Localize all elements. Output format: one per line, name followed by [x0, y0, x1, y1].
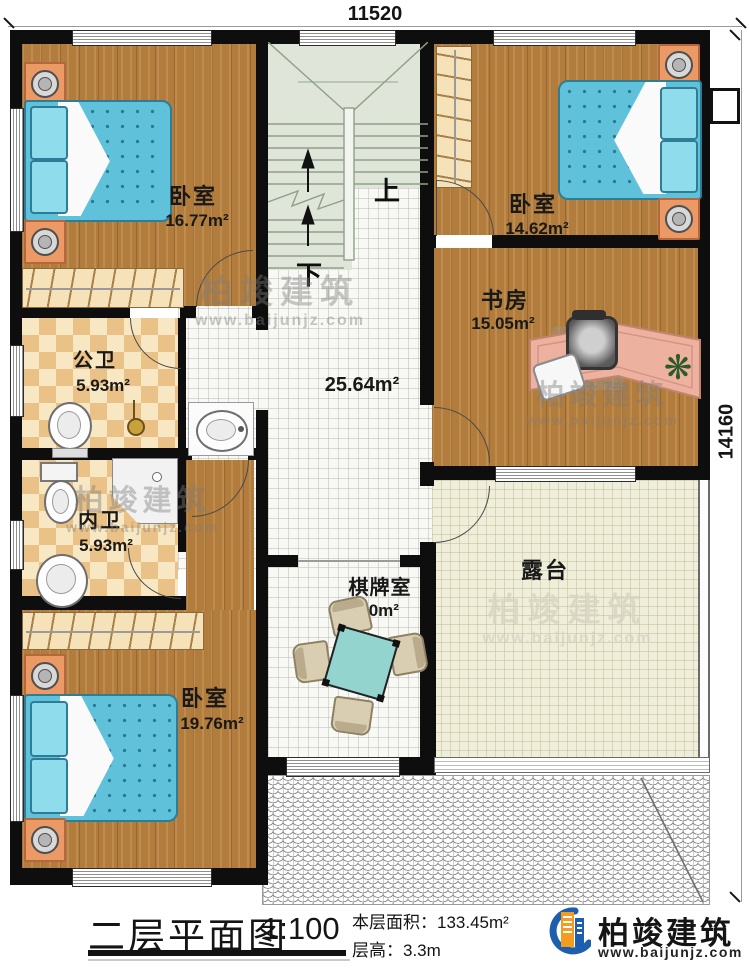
chair: [330, 695, 375, 736]
lamp-icon: [31, 826, 59, 854]
lamp-icon: [665, 51, 693, 79]
dimension-right-line: [741, 30, 742, 902]
pillow: [30, 701, 68, 757]
sink-basin: [206, 419, 236, 441]
floor-height-text: 层高：3.3m: [352, 936, 441, 961]
wall: [256, 410, 268, 885]
title-underline: [88, 950, 346, 956]
closet: [436, 46, 472, 188]
room-label-chess: 棋牌室: [310, 577, 450, 600]
dimension-top-line: [8, 26, 742, 27]
wall: [268, 555, 298, 567]
chair-headrest: [572, 310, 606, 320]
lamp-icon: [665, 205, 693, 233]
closet-rail: [26, 288, 180, 290]
faucet-icon: [238, 426, 244, 432]
floor-area-text: 本层面积：133.45m²: [352, 908, 509, 933]
stairs-up-label: 上: [374, 178, 400, 204]
closet: [22, 268, 184, 308]
room-label-bedroom1: 卧室: [133, 184, 253, 209]
wall: [178, 460, 186, 552]
sink: [36, 554, 88, 608]
toilet-tank: [40, 462, 78, 482]
dimension-top-label: 11520: [0, 3, 750, 26]
hallway-area-label: 25.64m²: [300, 374, 424, 397]
lamp-icon: [31, 70, 59, 98]
bed: [558, 80, 702, 200]
brand-logo-icon: [545, 906, 591, 960]
room-label-terrace: 露台: [485, 558, 605, 583]
window: [72, 868, 212, 887]
brand-website: www.baijunjz.com: [598, 944, 743, 960]
wall: [400, 555, 434, 567]
room-label-inner-bath: 内卫: [45, 510, 155, 533]
dimension-tick: [729, 29, 740, 40]
stairs-diagram: [268, 42, 428, 270]
window: [10, 345, 24, 417]
chess-room-opening: [298, 560, 400, 562]
lamp-icon: [31, 228, 59, 256]
dimension-tick: [729, 891, 740, 902]
flue-box: [710, 88, 740, 124]
toilet-bowl: [57, 411, 81, 439]
nightstand: [24, 818, 66, 862]
stairs-down-label: 下: [296, 262, 322, 288]
wall: [256, 30, 268, 330]
room-area-public-bath: 5.93m²: [48, 376, 158, 396]
terrace-railing-right: [698, 480, 710, 757]
room-area-study: 15.05m²: [443, 314, 563, 334]
pillow: [30, 106, 68, 160]
chair-back: [334, 721, 367, 734]
roof-tiles: [262, 775, 710, 905]
window: [10, 108, 24, 232]
room-area-bedroom1: 16.77m²: [137, 211, 257, 231]
closet-rail: [26, 631, 200, 633]
room-label-bedroom3: 卧室: [145, 686, 265, 711]
room-label-public-bath: 公卫: [40, 350, 150, 373]
window: [72, 30, 212, 46]
roof-ridge-line: [263, 776, 709, 904]
dimension-right-label: 14160: [716, 387, 739, 477]
floor-drain-handle: [133, 400, 135, 420]
title-underline-thin: [88, 959, 350, 961]
wall: [10, 596, 186, 610]
chair-back: [294, 647, 307, 680]
pillow: [30, 758, 68, 814]
nightstand: [24, 654, 66, 698]
toilet: [48, 402, 92, 450]
window: [286, 757, 400, 777]
pillow: [30, 160, 68, 214]
plant-icon: ❋: [658, 348, 698, 388]
floor-plan-page: 11520 14160: [0, 0, 750, 975]
room-area-bedroom2: 14.62m²: [477, 219, 597, 239]
nightstand: [658, 198, 700, 240]
room-area-chess: 8.60m²: [302, 601, 442, 621]
nightstand: [24, 220, 66, 264]
toilet-base: [52, 448, 88, 458]
closet-rail: [454, 50, 456, 184]
window: [10, 695, 24, 822]
room-label-bedroom2: 卧室: [473, 192, 593, 217]
wall: [262, 757, 286, 775]
room-area-bedroom3: 19.76m²: [152, 714, 272, 734]
shower-drain-icon: [152, 472, 162, 482]
window: [10, 520, 24, 570]
floor-drain-icon: [127, 418, 145, 436]
window: [495, 466, 636, 482]
pillow: [660, 87, 698, 140]
table-corner: [321, 678, 330, 687]
wall: [252, 306, 268, 318]
pillow: [660, 140, 698, 193]
sink-basin: [46, 564, 76, 594]
wall: [398, 757, 434, 775]
plan-scale: 1:100: [262, 911, 340, 947]
terrace-railing-bottom: [434, 757, 710, 773]
room-label-study: 书房: [445, 288, 565, 313]
table-corner: [337, 623, 346, 632]
lamp-icon: [31, 662, 59, 690]
window: [493, 30, 636, 46]
closet: [22, 612, 204, 650]
